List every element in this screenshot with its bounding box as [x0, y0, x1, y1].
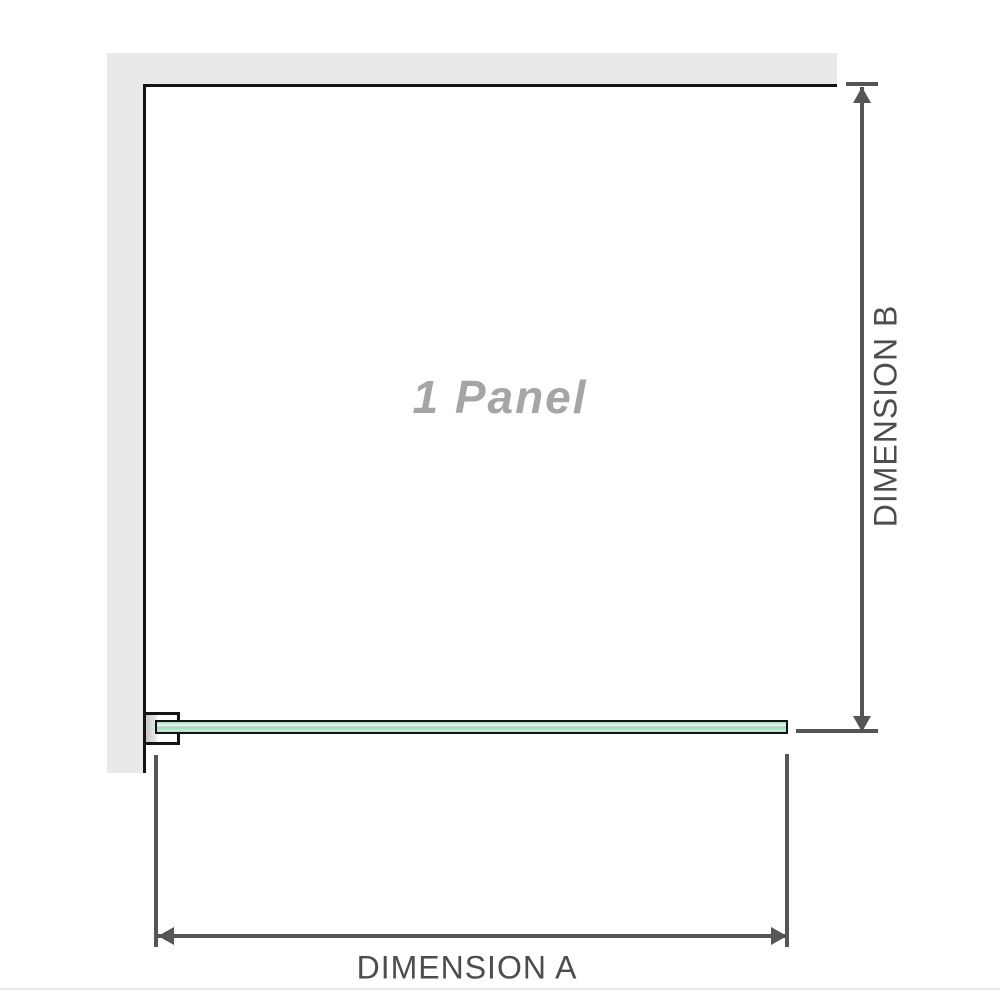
dimension-a-line — [158, 934, 787, 938]
dimension-a-right-extension-line — [785, 754, 789, 947]
dimension-a-label: DIMENSION A — [357, 950, 578, 987]
dimension-b-arrow-up-icon — [853, 87, 871, 103]
dimension-b-label: DIMENSION B — [868, 305, 905, 528]
dimension-b-top-tick — [846, 82, 878, 86]
glass-panel — [155, 720, 788, 734]
enclosure-left-edge — [143, 84, 146, 773]
image-bottom-border — [0, 988, 1000, 990]
enclosure-top-edge — [143, 84, 837, 87]
dimension-b-line — [860, 87, 864, 732]
diagram-canvas: 1 Panel DIMENSION B DIMENSION A — [0, 0, 1000, 1000]
dimension-a-left-extension-line — [154, 755, 158, 947]
dimension-a-arrow-right-icon — [771, 927, 787, 945]
dimension-b-bottom-tick — [796, 729, 878, 733]
dimension-a-arrow-left-icon — [158, 927, 174, 945]
wall-top-strip — [107, 53, 837, 84]
panel-count-label: 1 Panel — [412, 370, 587, 424]
wall-left-strip — [107, 53, 143, 773]
